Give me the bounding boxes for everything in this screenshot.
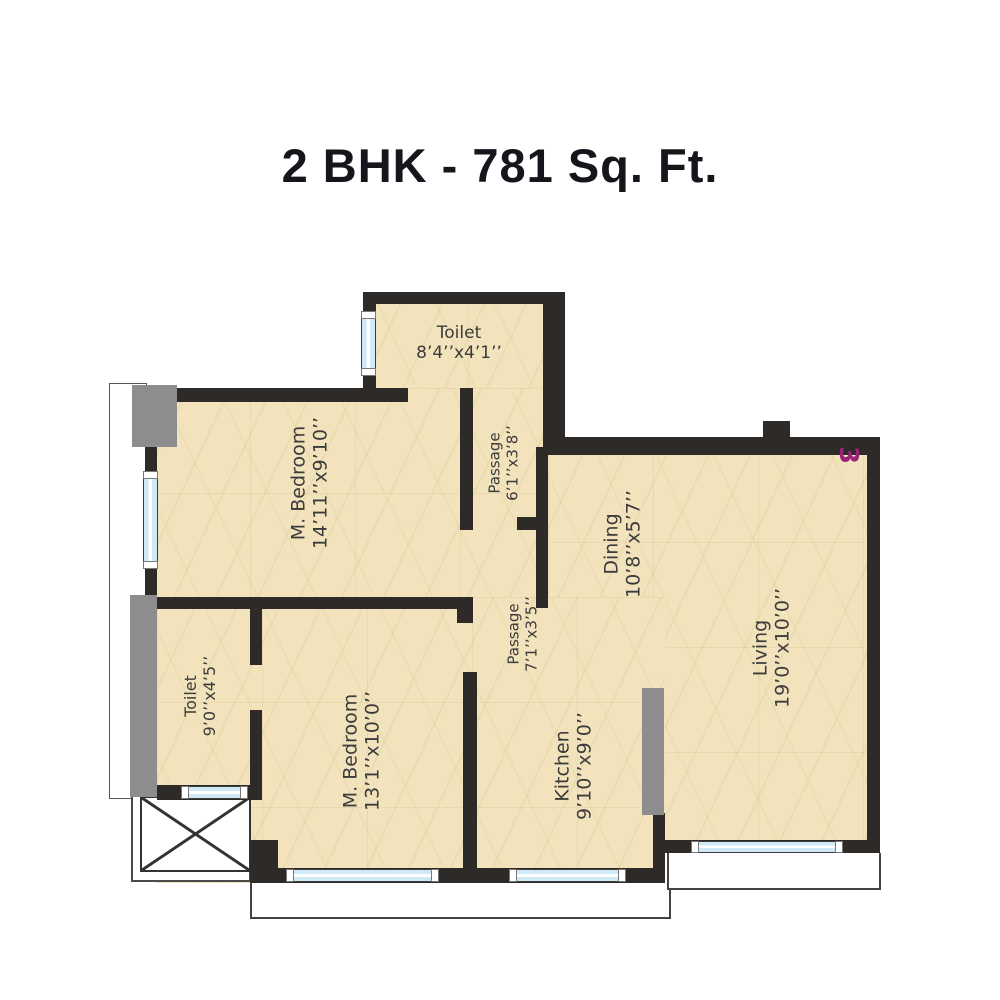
wall-right-outer bbox=[867, 437, 880, 853]
room-dims: 7’1’’x3’5’’ bbox=[523, 596, 541, 672]
wall-top-right bbox=[548, 437, 877, 455]
chajja-outline-bottom-right bbox=[667, 853, 881, 890]
window-kitchen bbox=[515, 869, 620, 882]
chajja-outline-bottom bbox=[250, 883, 671, 919]
wall-passage1-top-jamb bbox=[460, 388, 473, 402]
window-toilet2 bbox=[187, 786, 242, 799]
wall-passage1-bottom-stub bbox=[517, 517, 548, 530]
room-name: Toilet bbox=[416, 323, 502, 343]
page-title: 2 BHK - 781 Sq. Ft. bbox=[0, 138, 1000, 193]
room-dims: 14’11’’x9’10’’ bbox=[310, 417, 332, 549]
unit-number: 3 bbox=[833, 446, 863, 464]
room-name: Dining bbox=[601, 490, 623, 598]
room-dims: 8’4’’x4’1’’ bbox=[416, 343, 502, 363]
room-label-passage-1: Passage 6’1’’x3’8’’ bbox=[486, 425, 521, 501]
room-dims: 10’8’’x5’7’’ bbox=[623, 490, 645, 598]
kitchen-platform bbox=[642, 688, 664, 815]
duct-top-left bbox=[132, 385, 177, 447]
wall-passage1-left bbox=[460, 402, 473, 530]
floor-plan: 2 BHK - 781 Sq. Ft. bbox=[0, 0, 1000, 1000]
window-bedroom2 bbox=[292, 869, 433, 882]
wall-bedroom2-left-upper bbox=[250, 609, 262, 665]
window-toilet-top bbox=[361, 317, 376, 370]
room-name: Living bbox=[750, 588, 772, 708]
room-dims: 6’1’’x3’8’’ bbox=[504, 425, 522, 501]
room-name: M. Bedroom bbox=[340, 691, 362, 811]
room-label-m-bedroom-2: M. Bedroom 13’1’’x10’0’’ bbox=[340, 691, 385, 811]
wall-mid-divider bbox=[157, 597, 473, 609]
room-dims: 19’0’’x10’0’’ bbox=[772, 588, 794, 708]
window-living bbox=[697, 841, 837, 853]
room-name: M. Bedroom bbox=[288, 417, 310, 549]
room-dims: 13’1’’x10’0’’ bbox=[362, 691, 384, 811]
wall-top-right-step bbox=[763, 421, 790, 437]
room-dims: 9’0’’x4’5’’ bbox=[201, 656, 220, 737]
wall-bedroom1-top bbox=[145, 388, 408, 402]
room-name: Kitchen bbox=[552, 712, 574, 820]
room-label-toilet-top: Toilet 8’4’’x4’1’’ bbox=[416, 323, 502, 363]
room-name: Toilet bbox=[182, 656, 201, 737]
wall-divider-stub bbox=[457, 609, 473, 623]
wall-kitchen-left bbox=[463, 672, 477, 883]
duct-left-strip bbox=[130, 595, 157, 797]
room-label-m-bedroom-1: M. Bedroom 14’11’’x9’10’’ bbox=[288, 417, 333, 549]
wall-toilet-right bbox=[543, 292, 565, 447]
shaft-cross-icon bbox=[142, 798, 249, 870]
room-label-passage-2: Passage 7’1’’x3’5’’ bbox=[505, 596, 540, 672]
room-label-kitchen: Kitchen 9’10’’x9’0’’ bbox=[552, 712, 597, 820]
room-label-toilet-left: Toilet 9’0’’x4’5’’ bbox=[182, 656, 220, 737]
window-bedroom1 bbox=[143, 477, 158, 563]
room-label-living: Living 19’0’’x10’0’’ bbox=[750, 588, 795, 708]
room-name: Passage bbox=[505, 596, 523, 672]
room-name: Passage bbox=[486, 425, 504, 501]
room-label-dining: Dining 10’8’’x5’7’’ bbox=[601, 490, 646, 598]
wall-toilet-top bbox=[363, 292, 565, 304]
room-dims: 9’10’’x9’0’’ bbox=[574, 712, 596, 820]
shaft-cross-box bbox=[140, 796, 251, 872]
